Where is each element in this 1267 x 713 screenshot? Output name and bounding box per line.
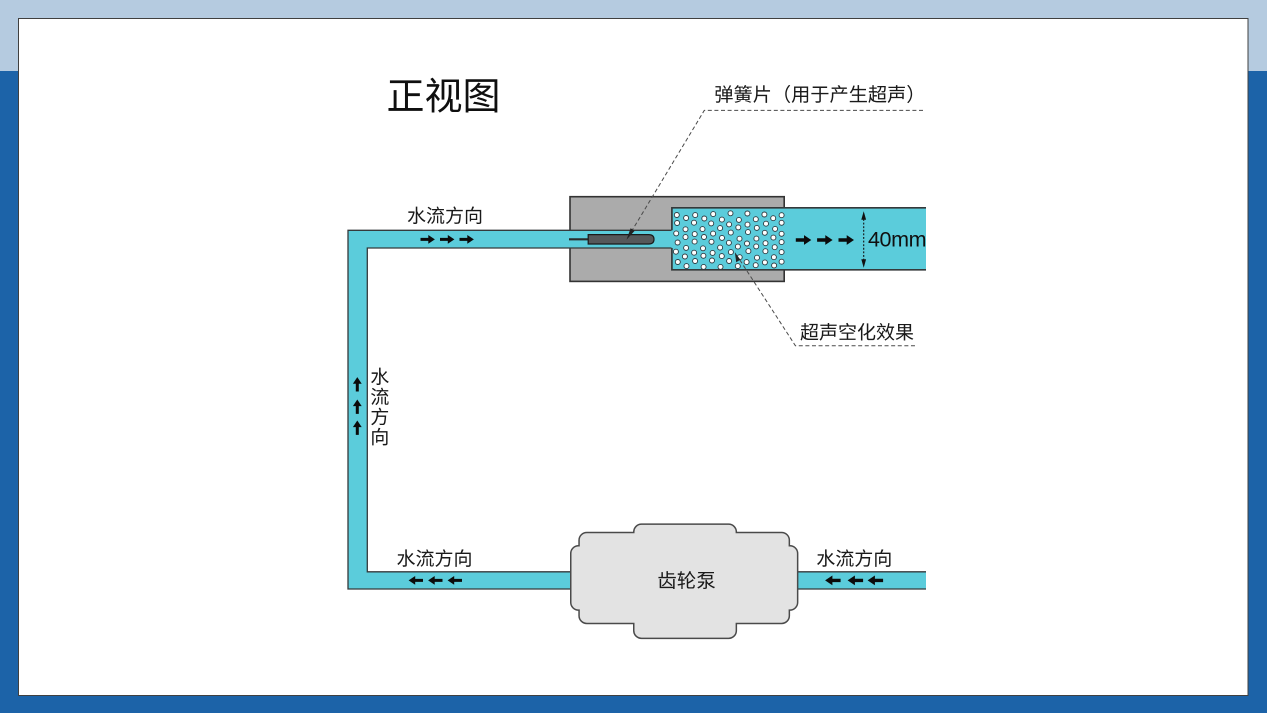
svg-text:40mm: 40mm: [868, 228, 926, 252]
